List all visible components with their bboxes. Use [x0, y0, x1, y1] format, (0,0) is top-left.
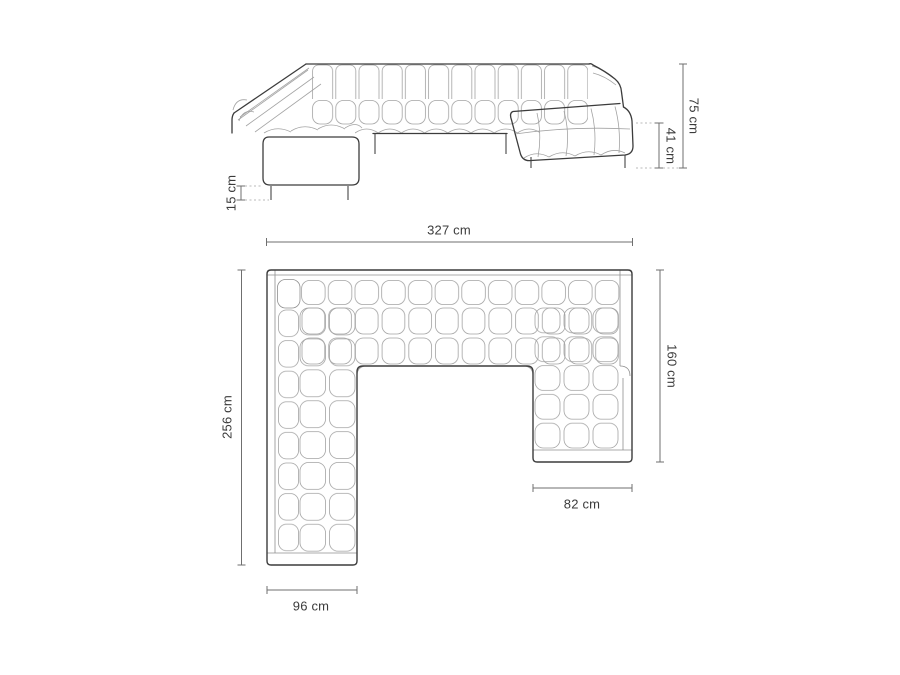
dim-label-leg-height: 15 cm — [225, 175, 238, 211]
sofa-legs-front — [271, 134, 625, 200]
dim-label-right-arm-depth: 160 cm — [666, 344, 679, 388]
dim-label-total-depth: 256 cm — [221, 395, 234, 439]
dim-label-total-height: 75 cm — [688, 98, 701, 134]
sofa-top-plan — [238, 270, 665, 594]
dim-label-left-arm-width: 96 cm — [293, 600, 329, 613]
sofa-front-elevation — [232, 64, 687, 246]
dim-label-total-width: 327 cm — [427, 224, 471, 237]
sofa-dimension-diagram: 75 cm 41 cm 15 cm 327 cm 256 cm 160 cm 8… — [0, 0, 900, 675]
dim-label-right-arm-width: 82 cm — [564, 498, 600, 511]
dim-label-seat-height: 41 cm — [665, 128, 678, 164]
sofa-drawing-canvas — [0, 0, 900, 675]
